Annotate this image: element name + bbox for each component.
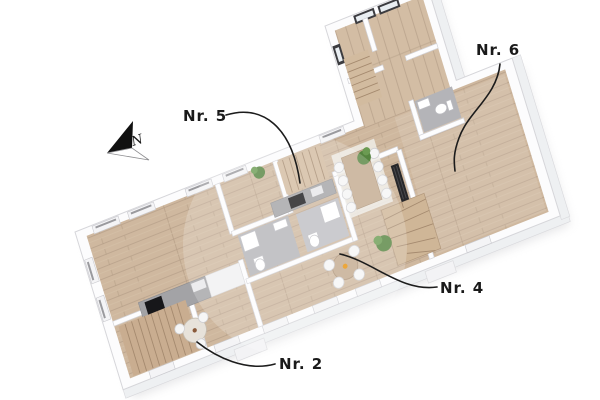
floor-plan-rendering: N Nr. 5 Nr. 6 Nr. 4 Nr. 2: [0, 0, 600, 400]
unit-label-nr5: Nr. 5: [183, 107, 227, 125]
unit-label-nr6: Nr. 6: [476, 41, 520, 59]
unit-label-nr4: Nr. 4: [440, 279, 484, 297]
light-vignette: [183, 133, 407, 357]
north-compass: N: [107, 121, 149, 160]
unit-label-nr2: Nr. 2: [279, 355, 323, 373]
floor-plan-canvas: N Nr. 5 Nr. 6 Nr. 4 Nr. 2: [0, 0, 600, 400]
